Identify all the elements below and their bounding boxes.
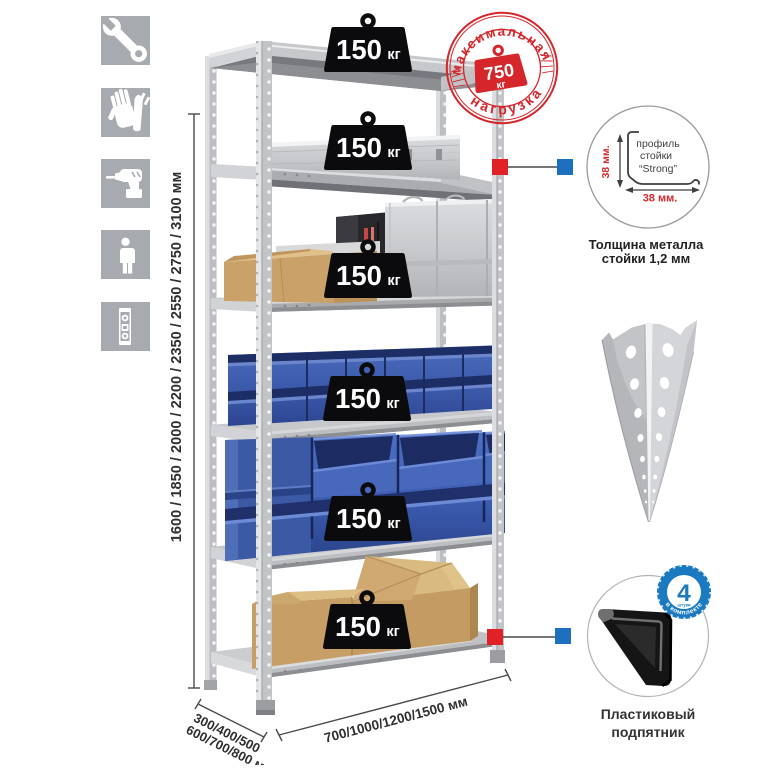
svg-text:кг: кг (387, 145, 400, 161)
svg-text:150: 150 (336, 260, 382, 291)
svg-text:кг: кг (386, 624, 399, 640)
svg-text:кг: кг (386, 396, 399, 412)
svg-text:1600 / 1850 / 2000 / 2200 / 23: 1600 / 1850 / 2000 / 2200 / 2350 / 2550 … (169, 172, 185, 543)
svg-text:стойки 1,2 мм: стойки 1,2 мм (602, 251, 690, 266)
svg-text:“Strong”: “Strong” (639, 163, 677, 175)
svg-text:кг: кг (387, 47, 400, 63)
svg-text:150: 150 (336, 132, 382, 163)
svg-text:38 мм.: 38 мм. (600, 145, 612, 178)
svg-text:700/1000/1200/1500 мм: 700/1000/1200/1500 мм (323, 694, 470, 746)
svg-text:Пластиковый: Пластиковый (601, 706, 696, 722)
svg-text:стойки: стойки (640, 150, 672, 162)
svg-text:профиль: профиль (636, 138, 680, 150)
svg-text:Толщина металла: Толщина металла (589, 237, 704, 252)
svg-text:150: 150 (336, 503, 382, 534)
svg-text:кг: кг (387, 273, 400, 289)
svg-text:150: 150 (336, 34, 382, 65)
svg-text:штуки: штуки (677, 603, 691, 608)
svg-text:150: 150 (335, 611, 381, 642)
svg-text:кг: кг (496, 79, 507, 91)
svg-text:38 мм.: 38 мм. (643, 193, 678, 205)
svg-text:кг: кг (387, 516, 400, 532)
svg-text:150: 150 (335, 383, 381, 414)
svg-text:подпятник: подпятник (611, 724, 685, 740)
